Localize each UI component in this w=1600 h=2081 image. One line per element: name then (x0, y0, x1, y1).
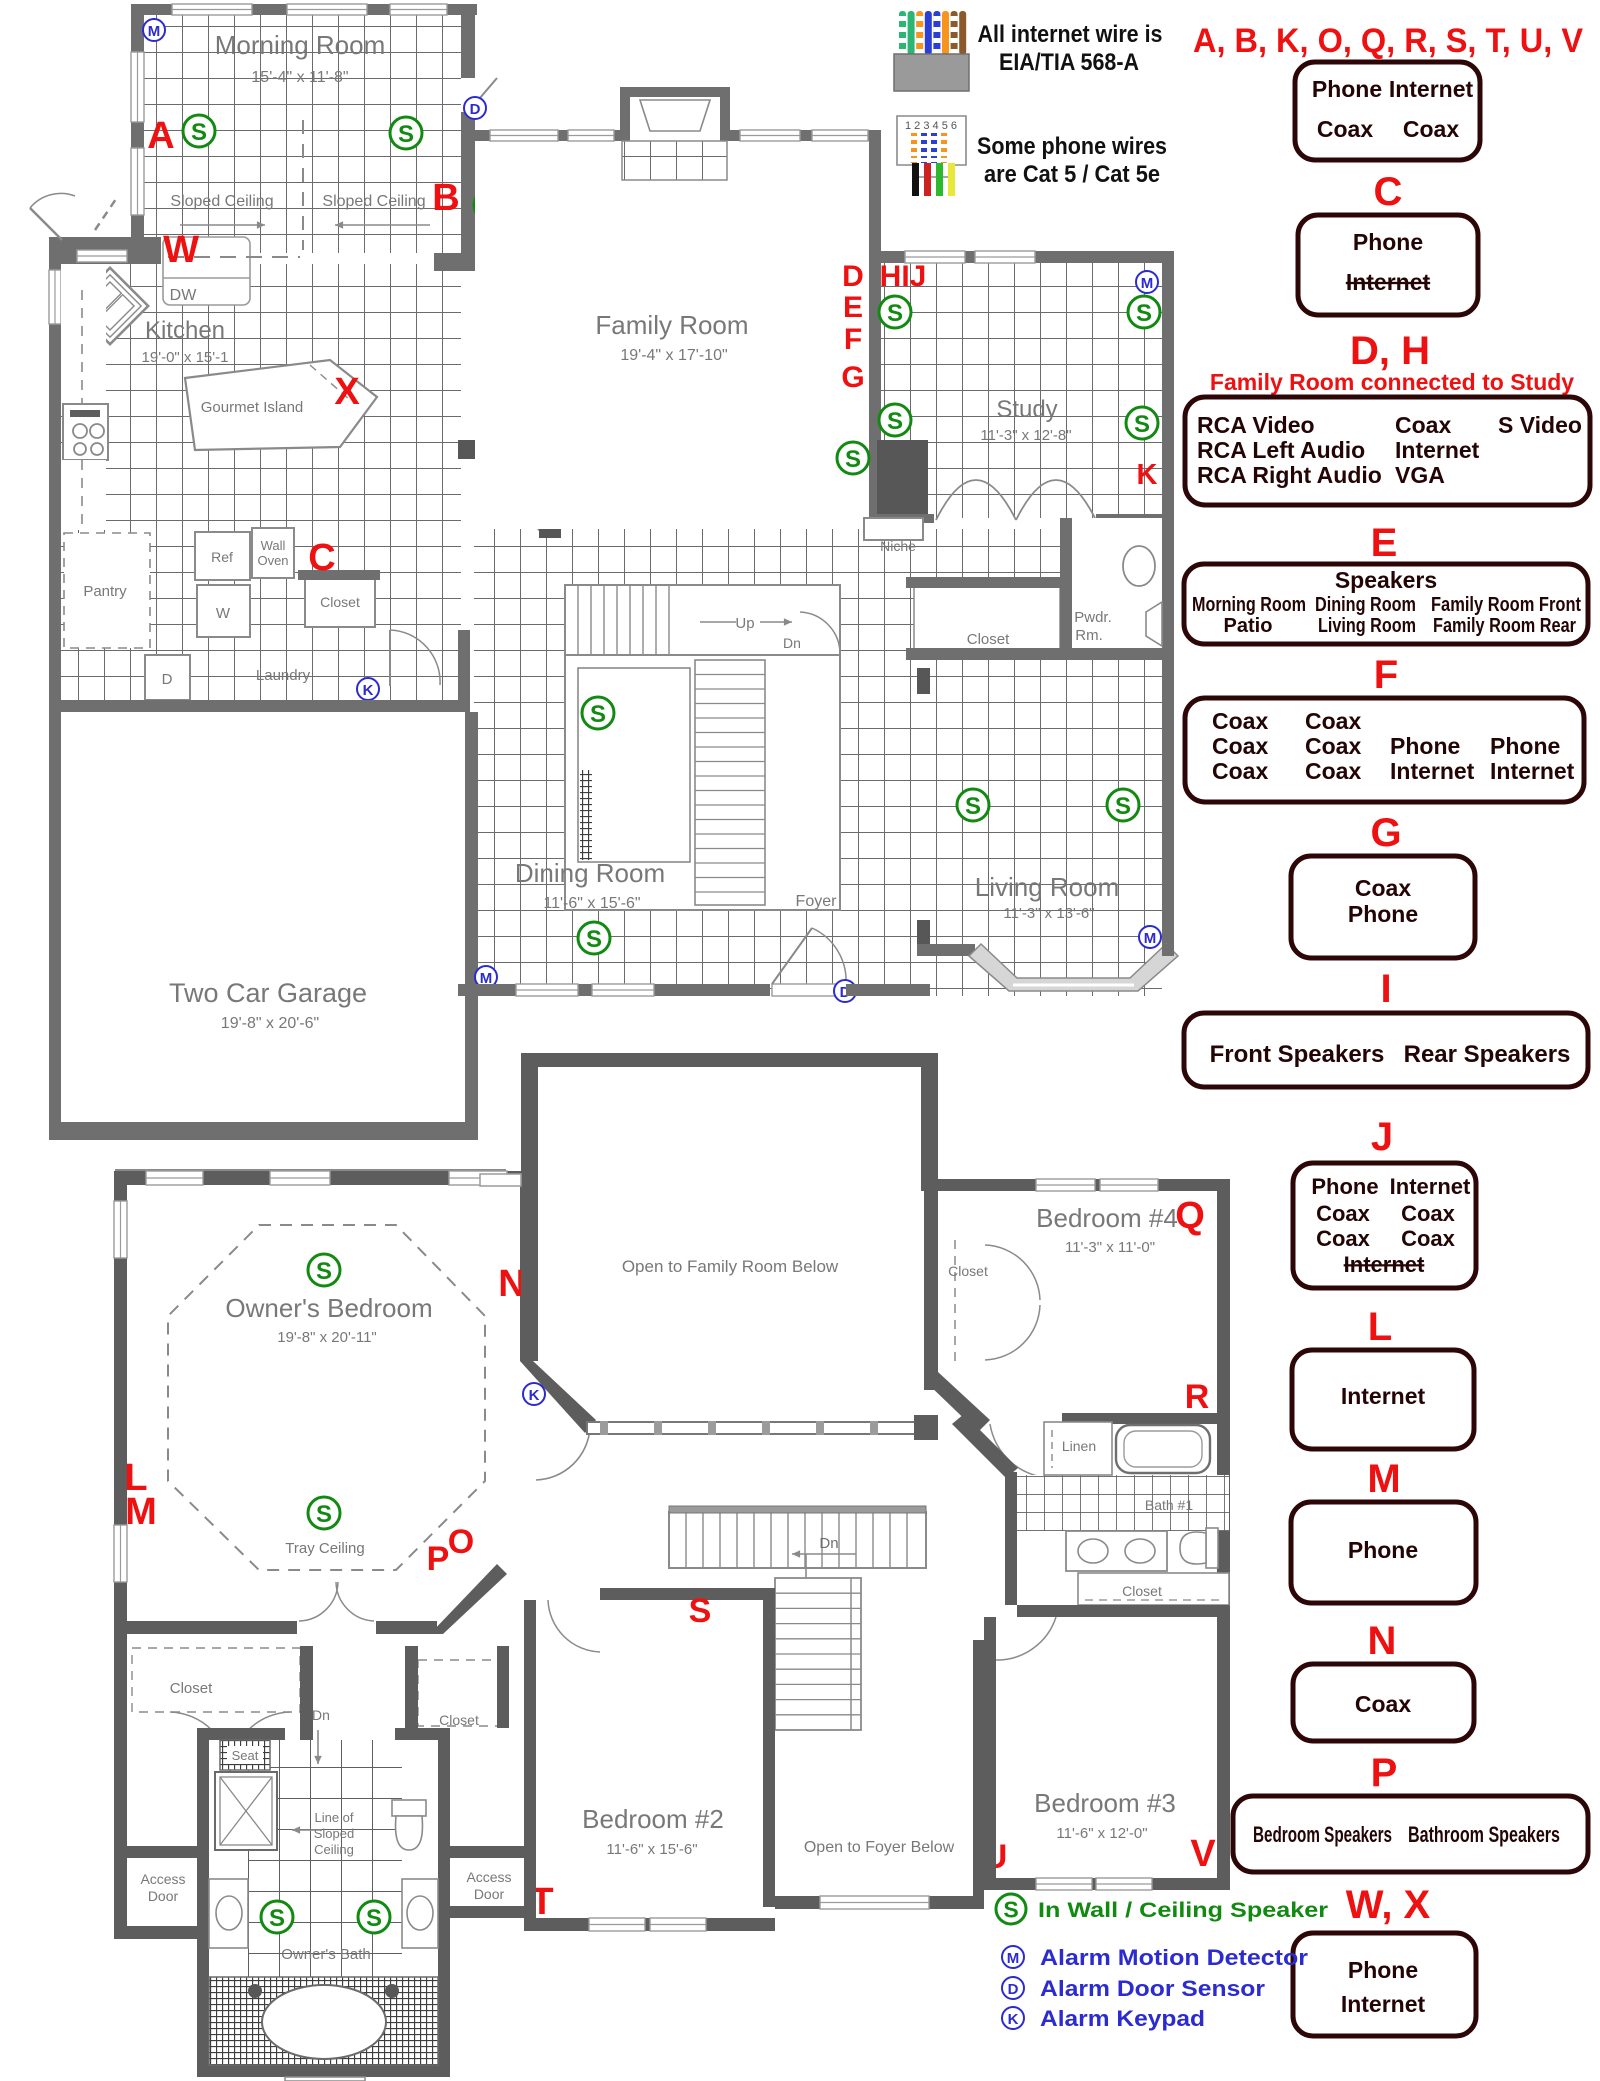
svg-text:DW: DW (170, 287, 198, 304)
svg-text:11'-6" x 15'-6": 11'-6" x 15'-6" (606, 1841, 697, 1858)
svg-text:Door: Door (474, 1886, 505, 1902)
svg-text:Patio: Patio (1224, 615, 1273, 637)
svg-text:Coax: Coax (1355, 1691, 1411, 1717)
svg-text:S: S (1136, 300, 1152, 327)
svg-text:Coax: Coax (1305, 733, 1361, 759)
svg-text:Pwdr.: Pwdr. (1074, 609, 1112, 626)
svg-text:Closet: Closet (948, 1263, 988, 1279)
svg-text:S: S (845, 446, 861, 473)
svg-text:M: M (1007, 1950, 1020, 1967)
svg-text:S: S (1115, 793, 1131, 820)
svg-text:Owner's Bath: Owner's Bath (281, 1946, 371, 1963)
svg-text:S: S (887, 408, 903, 435)
svg-text:11'-6" x 15'-6": 11'-6" x 15'-6" (543, 895, 640, 912)
svg-text:Internet: Internet (1341, 1991, 1426, 2017)
svg-text:Alarm Door Sensor: Alarm Door Sensor (1040, 1976, 1265, 2001)
svg-text:Coax: Coax (1305, 708, 1361, 734)
svg-text:Phone: Phone (1348, 901, 1418, 927)
svg-text:11'-3" x 13'-6": 11'-3" x 13'-6" (1003, 905, 1094, 922)
svg-text:11'-3" x 11'-0": 11'-3" x 11'-0" (1065, 1239, 1155, 1256)
svg-text:Ceiling: Ceiling (314, 1842, 354, 1857)
svg-text:Bedroom #3: Bedroom #3 (1034, 1788, 1176, 1818)
svg-text:L: L (1368, 1305, 1392, 1349)
svg-text:Speakers: Speakers (1335, 567, 1437, 593)
svg-text:S: S (689, 1592, 712, 1630)
svg-text:VGA: VGA (1395, 462, 1445, 488)
svg-text:S: S (965, 793, 981, 820)
svg-text:M: M (1367, 1457, 1400, 1501)
svg-text:X: X (334, 371, 360, 413)
svg-text:Owner's Bedroom: Owner's Bedroom (225, 1293, 432, 1323)
svg-text:Closet: Closet (967, 631, 1010, 648)
svg-text:Oven: Oven (257, 553, 288, 568)
svg-text:Family Room Front: Family Room Front (1431, 594, 1581, 616)
svg-text:R: R (1185, 1378, 1210, 1416)
svg-text:M: M (1141, 275, 1154, 292)
svg-text:Bedroom Speakers: Bedroom Speakers (1253, 1822, 1392, 1847)
svg-text:S: S (366, 1905, 382, 1932)
svg-text:EIA/TIA 568-A: EIA/TIA 568-A (999, 49, 1139, 76)
svg-text:Q: Q (1175, 1195, 1205, 1237)
svg-text:19'-0" x 15'-1: 19'-0" x 15'-1 (142, 349, 229, 366)
svg-text:Gourmet Island: Gourmet Island (201, 399, 304, 416)
svg-text:In Wall / Ceiling Speaker: In Wall / Ceiling Speaker (1038, 1899, 1328, 1922)
svg-text:Door: Door (148, 1888, 179, 1904)
svg-text:All internet wire is: All internet wire is (978, 21, 1163, 48)
svg-text:RCA Right Audio: RCA Right Audio (1197, 462, 1382, 488)
svg-text:Coax: Coax (1316, 1226, 1371, 1251)
svg-text:19'-4" x 17'-10": 19'-4" x 17'-10" (620, 347, 727, 364)
svg-text:HIJ: HIJ (880, 260, 927, 293)
svg-text:Coax: Coax (1212, 708, 1268, 734)
svg-text:B: B (432, 177, 459, 219)
svg-text:Dining Room: Dining Room (1315, 594, 1416, 616)
svg-text:Phone: Phone (1311, 1174, 1378, 1199)
svg-text:S Video: S Video (1498, 412, 1582, 438)
svg-text:Family Room: Family Room (595, 310, 748, 340)
svg-text:Coax: Coax (1317, 116, 1373, 142)
svg-text:S: S (316, 1501, 332, 1528)
svg-text:M: M (125, 1491, 157, 1533)
svg-text:S: S (1003, 1896, 1018, 1922)
svg-text:Morning Room: Morning Room (1192, 594, 1306, 616)
svg-text:Closet: Closet (1122, 1583, 1162, 1599)
svg-text:M: M (148, 23, 161, 40)
svg-text:19'-8" x 20'-6": 19'-8" x 20'-6" (221, 1015, 319, 1032)
svg-text:Internet: Internet (1389, 76, 1474, 102)
svg-text:Access: Access (466, 1869, 511, 1885)
svg-text:Family Room connected to Study: Family Room connected to Study (1210, 369, 1574, 395)
svg-text:Alarm Keypad: Alarm Keypad (1040, 2006, 1205, 2031)
svg-text:Coax: Coax (1305, 758, 1361, 784)
svg-text:Coax: Coax (1395, 412, 1451, 438)
svg-text:Phone: Phone (1390, 733, 1460, 759)
svg-text:Dining Room: Dining Room (515, 858, 665, 888)
svg-text:K: K (529, 1387, 540, 1404)
svg-text:Ref: Ref (211, 549, 233, 565)
svg-text:Seat: Seat (232, 1748, 259, 1763)
svg-text:11'-6" x 12'-0": 11'-6" x 12'-0" (1056, 1825, 1147, 1842)
svg-text:Linen: Linen (1062, 1438, 1096, 1454)
svg-text:S: S (191, 119, 207, 146)
svg-text:D: D (470, 101, 481, 118)
svg-text:RCA Video: RCA Video (1197, 412, 1315, 438)
svg-text:Family Room Rear: Family Room Rear (1433, 615, 1576, 637)
svg-text:S: S (887, 300, 903, 327)
svg-text:N: N (1368, 1619, 1397, 1663)
svg-text:Internet: Internet (1341, 1383, 1426, 1409)
svg-text:F: F (844, 323, 862, 356)
svg-text:W: W (163, 229, 199, 271)
svg-text:Internet: Internet (1490, 758, 1575, 784)
svg-text:Foyer: Foyer (796, 893, 838, 910)
svg-text:Bathroom Speakers: Bathroom Speakers (1408, 1822, 1560, 1847)
svg-text:Up: Up (735, 615, 754, 632)
svg-text:Internet: Internet (1395, 437, 1480, 463)
svg-text:Bedroom #2: Bedroom #2 (582, 1804, 724, 1834)
svg-text:Rm.: Rm. (1075, 627, 1103, 644)
svg-text:S: S (1134, 411, 1150, 438)
svg-text:Sloped: Sloped (314, 1826, 354, 1841)
svg-text:15'-4" x 11'-8": 15'-4" x 11'-8" (251, 69, 348, 86)
svg-text:Line of: Line of (314, 1810, 353, 1825)
svg-text:Morning Room: Morning Room (215, 30, 386, 60)
svg-text:Laundry: Laundry (256, 667, 311, 684)
svg-text:S: S (269, 1905, 285, 1932)
svg-text:Niche: Niche (880, 538, 916, 554)
svg-text:Wall: Wall (261, 538, 286, 553)
svg-text:Coax: Coax (1212, 758, 1268, 784)
svg-text:Living Room: Living Room (975, 872, 1120, 902)
svg-text:C: C (1374, 170, 1403, 214)
svg-text:P: P (427, 1540, 450, 1578)
svg-text:Alarm Motion Detector: Alarm Motion Detector (1040, 1945, 1308, 1970)
svg-text:Pantry: Pantry (83, 583, 127, 600)
svg-text:Bath #1: Bath #1 (1145, 1497, 1193, 1513)
svg-text:E: E (843, 291, 863, 324)
svg-text:Front Speakers: Front Speakers (1210, 1041, 1385, 1068)
svg-text:Bedroom #4: Bedroom #4 (1036, 1203, 1178, 1233)
svg-text:Phone: Phone (1348, 1537, 1418, 1563)
svg-text:Closet: Closet (439, 1712, 479, 1728)
svg-text:RCA Left Audio: RCA Left Audio (1197, 437, 1365, 463)
svg-text:D: D (1008, 1981, 1019, 1998)
svg-text:Closet: Closet (170, 1680, 213, 1697)
svg-text:W: W (216, 605, 231, 622)
svg-text:Coax: Coax (1401, 1201, 1456, 1226)
svg-text:Coax: Coax (1355, 875, 1411, 901)
svg-text:Phone: Phone (1353, 229, 1423, 255)
svg-text:D, H: D, H (1350, 329, 1430, 373)
svg-text:Two Car Garage: Two Car Garage (169, 978, 367, 1008)
svg-text:Sloped Ceiling: Sloped Ceiling (170, 193, 273, 210)
svg-text:M: M (1144, 930, 1157, 947)
svg-text:P: P (1371, 1751, 1398, 1795)
svg-text:Sloped Ceiling: Sloped Ceiling (322, 193, 425, 210)
svg-text:Study: Study (996, 396, 1057, 423)
svg-text:19'-8" x 20'-11": 19'-8" x 20'-11" (277, 1329, 377, 1346)
svg-text:Internet: Internet (1390, 1174, 1471, 1199)
svg-text:Kitchen: Kitchen (145, 317, 225, 344)
svg-text:Internet: Internet (1344, 1252, 1425, 1277)
svg-text:Dn: Dn (312, 1707, 330, 1723)
svg-text:1 2 3 4 5 6: 1 2 3 4 5 6 (905, 120, 957, 132)
svg-text:Internet: Internet (1346, 269, 1431, 295)
svg-text:F: F (1374, 653, 1398, 697)
svg-text:A: A (147, 115, 174, 157)
svg-text:K: K (1008, 2011, 1019, 2028)
svg-text:Coax: Coax (1403, 116, 1459, 142)
svg-text:G: G (1370, 811, 1401, 855)
svg-text:Dn: Dn (783, 635, 801, 651)
svg-text:C: C (308, 537, 335, 579)
svg-text:Living Room: Living Room (1318, 615, 1416, 637)
svg-text:Closet: Closet (320, 594, 360, 610)
svg-text:W, X: W, X (1346, 1883, 1431, 1927)
svg-text:G: G (841, 361, 864, 394)
svg-text:S: S (590, 701, 606, 728)
svg-text:D: D (842, 260, 864, 293)
svg-text:S: S (586, 926, 602, 953)
svg-text:Tray Ceiling: Tray Ceiling (285, 1540, 364, 1557)
svg-text:11'-3" x 12'-8": 11'-3" x 12'-8" (980, 427, 1071, 444)
svg-text:V: V (1190, 1833, 1216, 1875)
svg-text:Open to Foyer Below: Open to Foyer Below (804, 1839, 955, 1856)
svg-text:I: I (1380, 967, 1391, 1011)
svg-text:O: O (448, 1523, 474, 1561)
svg-text:K: K (363, 682, 374, 699)
svg-text:Phone: Phone (1348, 1957, 1418, 1983)
svg-text:Phone: Phone (1312, 76, 1382, 102)
svg-text:Access: Access (140, 1871, 185, 1887)
svg-text:E: E (1371, 521, 1398, 565)
svg-text:Dn: Dn (819, 1535, 838, 1552)
svg-text:K: K (1137, 459, 1158, 491)
svg-text:Coax: Coax (1316, 1201, 1371, 1226)
svg-text:S: S (316, 1258, 332, 1285)
svg-text:Rear Speakers: Rear Speakers (1404, 1041, 1571, 1068)
svg-text:Open to Family Room Below: Open to Family Room Below (622, 1257, 839, 1276)
svg-text:A, B, K, O, Q, R, S, T, U, V: A, B, K, O, Q, R, S, T, U, V (1193, 22, 1583, 60)
svg-text:are Cat 5 / Cat 5e: are Cat 5 / Cat 5e (984, 161, 1160, 188)
svg-text:D: D (162, 671, 173, 688)
svg-text:Coax: Coax (1401, 1226, 1456, 1251)
svg-text:S: S (398, 121, 414, 148)
svg-text:Coax: Coax (1212, 733, 1268, 759)
svg-text:J: J (1371, 1115, 1393, 1159)
svg-text:Some phone wires: Some phone wires (977, 133, 1167, 160)
svg-text:Phone: Phone (1490, 733, 1560, 759)
svg-text:Internet: Internet (1390, 758, 1475, 784)
